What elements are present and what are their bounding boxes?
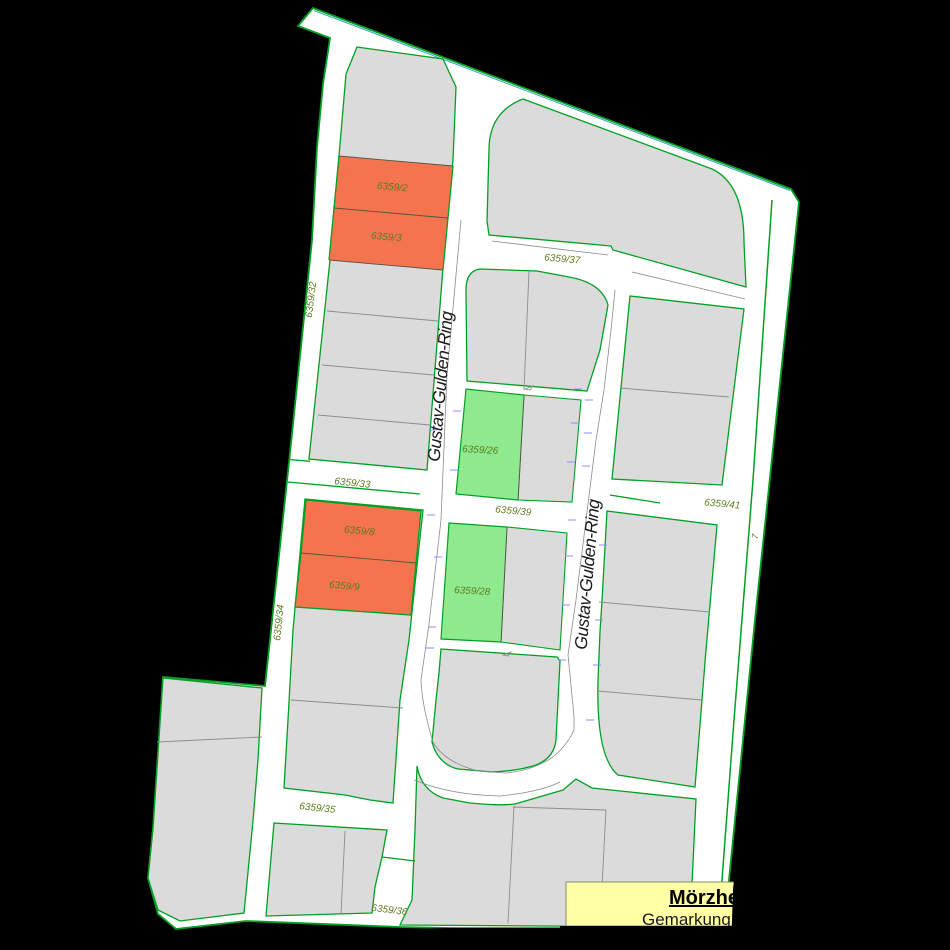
svg-text:6359/26: 6359/26 [462, 444, 499, 457]
svg-text:6359/28: 6359/28 [454, 585, 491, 598]
